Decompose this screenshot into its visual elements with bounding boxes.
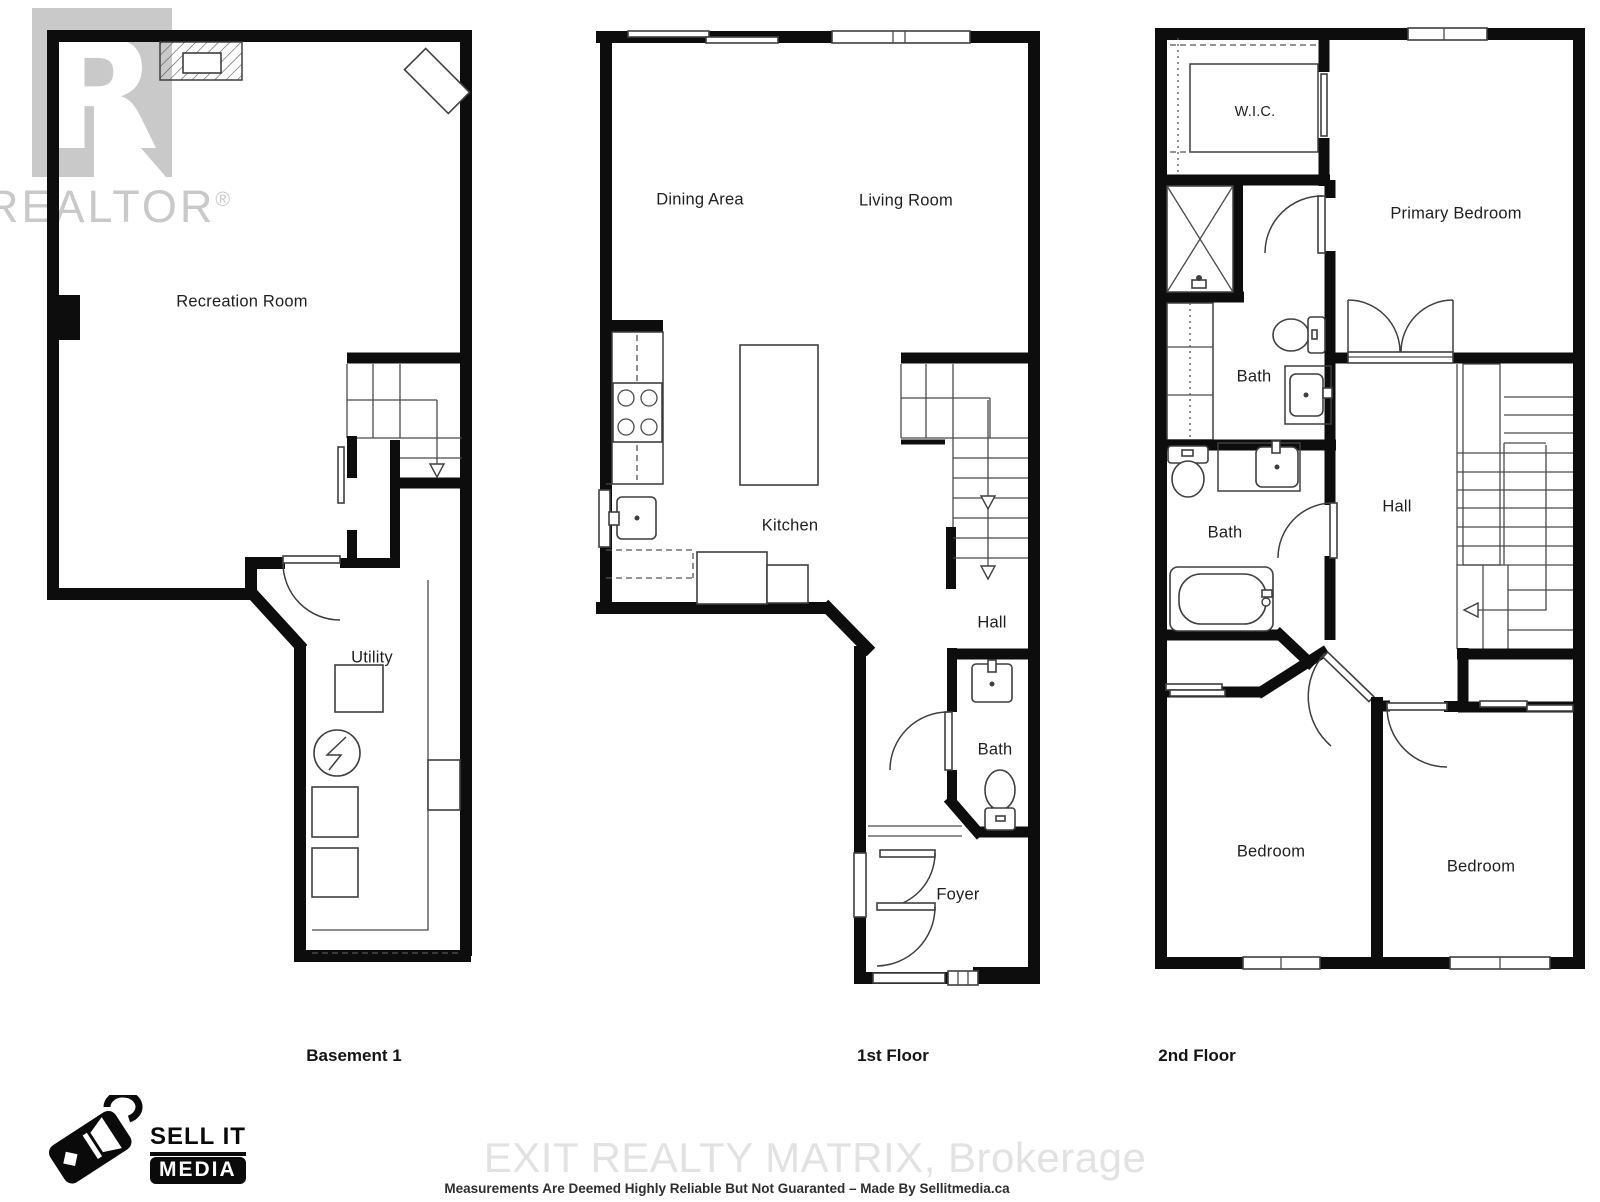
- bathroom-sink-icon: [972, 660, 1012, 702]
- bedroom-left-door-icon: [1308, 652, 1374, 746]
- label-foyer: Foyer: [936, 886, 979, 905]
- label-kitchen: Kitchen: [762, 517, 818, 536]
- label-bedroom-left: Bedroom: [1237, 843, 1305, 862]
- main-bath-door-leaf: [1330, 503, 1337, 558]
- kitchen-counter: [697, 552, 808, 604]
- front-door-sill-icon: [948, 971, 978, 985]
- toilet-icon: [1168, 446, 1208, 497]
- bedroom-left-window-icon: [1243, 957, 1320, 969]
- floor-plan-svg: [0, 0, 1600, 1202]
- logo-text-sell-it: SELL IT: [150, 1123, 246, 1156]
- label-ensuite-bath: Bath: [1237, 368, 1272, 387]
- under-stair-closet: [338, 436, 400, 568]
- first-floor-plan: [596, 31, 1034, 985]
- laundry-tub-icon: [428, 760, 460, 810]
- bedroom-left-closet-doors-icon: [1166, 684, 1225, 696]
- foyer-side-window-icon: [854, 853, 866, 917]
- ensuite-door-swing: [1265, 196, 1322, 253]
- label-bath-first: Bath: [978, 741, 1013, 760]
- primary-bedroom-window-icon: [1408, 28, 1487, 40]
- label-hall-second: Hall: [1382, 498, 1411, 517]
- sliding-door-icon: [338, 447, 344, 503]
- label-living-room: Living Room: [859, 192, 953, 211]
- label-dining-area: Dining Area: [656, 191, 744, 210]
- bedroom-right-window-icon: [1450, 957, 1550, 969]
- foyer-front-window-icon: [873, 973, 945, 983]
- toilet-icon: [1273, 317, 1325, 353]
- fireplace-icon: [160, 42, 242, 80]
- basement-stairs-icon: [347, 358, 471, 483]
- floor-plan-sheet: R REALTOR®: [0, 0, 1600, 1202]
- electrical-panel-icon: [314, 730, 360, 776]
- price-tag-camera-icon: [45, 1095, 145, 1190]
- bathtub-icon: [1170, 567, 1273, 631]
- footer-disclaimer: Measurements Are Deemed Highly Reliable …: [444, 1181, 1009, 1196]
- toilet-icon: [985, 770, 1015, 830]
- stove-icon: [613, 383, 662, 442]
- wall-bump-out: [47, 295, 80, 340]
- living-room-window-icon: [832, 31, 970, 43]
- primary-double-door-icon: [1348, 300, 1453, 363]
- corner-unit-icon: [404, 48, 469, 113]
- second-floor-plan: [1155, 28, 1585, 969]
- kitchen-cabinets: [606, 332, 693, 578]
- second-floor-stairs-icon: [1457, 364, 1585, 707]
- ensuite-door-leaf: [1318, 196, 1325, 253]
- title-basement: Basement 1: [306, 1046, 401, 1066]
- linen-cabinet: [1167, 303, 1213, 440]
- brokerage-watermark: EXIT REALTY MATRIX, Brokerage: [484, 1134, 1147, 1182]
- label-recreation-room: Recreation Room: [176, 293, 307, 312]
- main-bath: [1155, 441, 1337, 635]
- furnace-icon: [335, 665, 383, 712]
- bedroom-right-door-icon: [1387, 703, 1447, 767]
- basement-door-icon: [283, 556, 340, 620]
- basement-plan: [47, 30, 471, 956]
- first-floor-stairs-icon: [901, 358, 1034, 589]
- sell-it-media-logo: SELL IT MEDIA: [45, 1095, 345, 1190]
- label-main-bath: Bath: [1208, 524, 1243, 543]
- label-hall-first: Hall: [977, 614, 1006, 633]
- title-first-floor: 1st Floor: [857, 1046, 929, 1066]
- washer-icon: [312, 787, 358, 837]
- front-door-swing: [877, 907, 935, 966]
- label-bedroom-right: Bedroom: [1447, 858, 1515, 877]
- title-second-floor: 2nd Floor: [1158, 1046, 1235, 1066]
- dryer-icon: [312, 848, 358, 897]
- label-wic: W.I.C.: [1235, 104, 1276, 120]
- closet-door-leaf: [880, 850, 935, 857]
- pocket-door-icon: [1321, 74, 1327, 136]
- kitchen-sink-icon: [609, 497, 656, 539]
- bath-door-swing: [890, 712, 948, 770]
- bath-door-leaf: [945, 712, 952, 770]
- label-primary-bedroom: Primary Bedroom: [1390, 205, 1521, 224]
- logo-text-media: MEDIA: [150, 1157, 246, 1184]
- shower-icon: [1167, 186, 1233, 292]
- first-floor-bath: [890, 648, 1034, 836]
- closet-door-swing: [880, 853, 935, 908]
- label-utility: Utility: [351, 649, 393, 668]
- front-door-leaf: [877, 903, 935, 910]
- foyer-area: [854, 826, 978, 985]
- kitchen-island-icon: [740, 345, 818, 485]
- main-bath-door-swing: [1278, 503, 1330, 558]
